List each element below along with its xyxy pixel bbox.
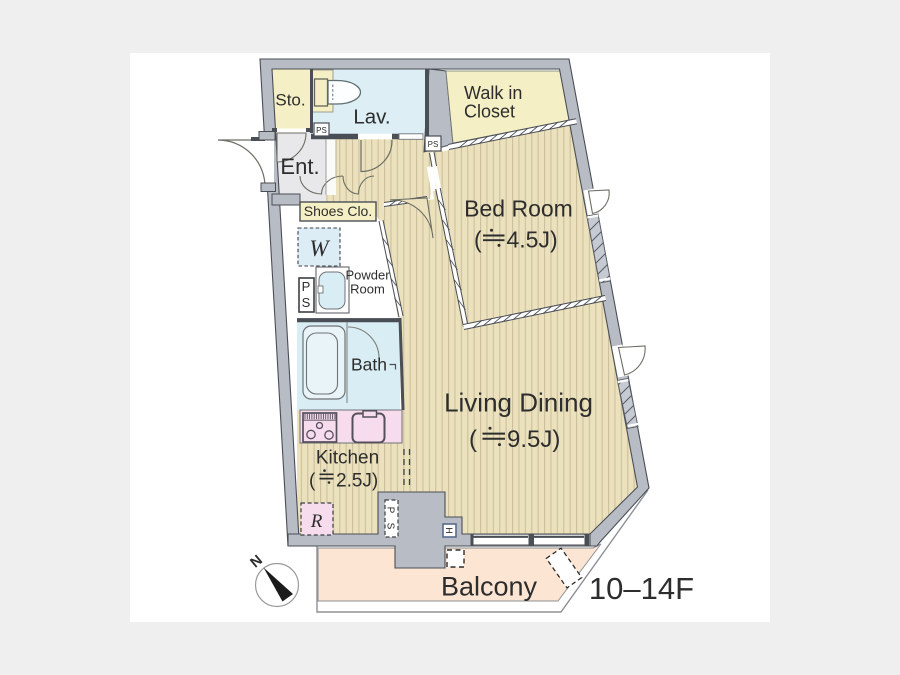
svg-text:W: W [309, 236, 330, 261]
svg-text:4.5J): 4.5J) [507, 227, 558, 253]
svg-text:S: S [385, 523, 396, 530]
svg-text:Balcony: Balcony [441, 572, 538, 602]
svg-text:Bath: Bath [351, 355, 387, 375]
svg-text:Sto.: Sto. [275, 91, 305, 110]
svg-text:P: P [302, 279, 311, 294]
svg-text:Shoes Clo.: Shoes Clo. [304, 203, 372, 219]
svg-text:(: ( [469, 426, 477, 453]
svg-text:Closet: Closet [464, 102, 515, 122]
svg-text:S: S [302, 295, 311, 310]
svg-text:Bed Room: Bed Room [464, 196, 573, 222]
svg-text:2.5J): 2.5J) [336, 471, 378, 492]
svg-text:Kitchen: Kitchen [316, 448, 379, 469]
svg-text:PS: PS [316, 126, 327, 135]
svg-text:PS: PS [428, 140, 439, 149]
svg-text:9.5J): 9.5J) [507, 426, 560, 453]
svg-text:10–14F: 10–14F [589, 571, 694, 606]
svg-text:(: ( [474, 227, 482, 253]
svg-text:Living Dining: Living Dining [444, 388, 593, 418]
svg-text:Ent.: Ent. [280, 154, 319, 179]
svg-text:(: ( [309, 471, 316, 492]
svg-text:Room: Room [350, 282, 385, 297]
svg-text:P: P [385, 507, 396, 514]
svg-text:Powder: Powder [345, 268, 390, 283]
svg-text:H: H [444, 527, 454, 534]
svg-text:Walk in: Walk in [464, 83, 522, 103]
svg-text:R: R [310, 511, 323, 532]
svg-text:Lav.: Lav. [353, 106, 390, 129]
